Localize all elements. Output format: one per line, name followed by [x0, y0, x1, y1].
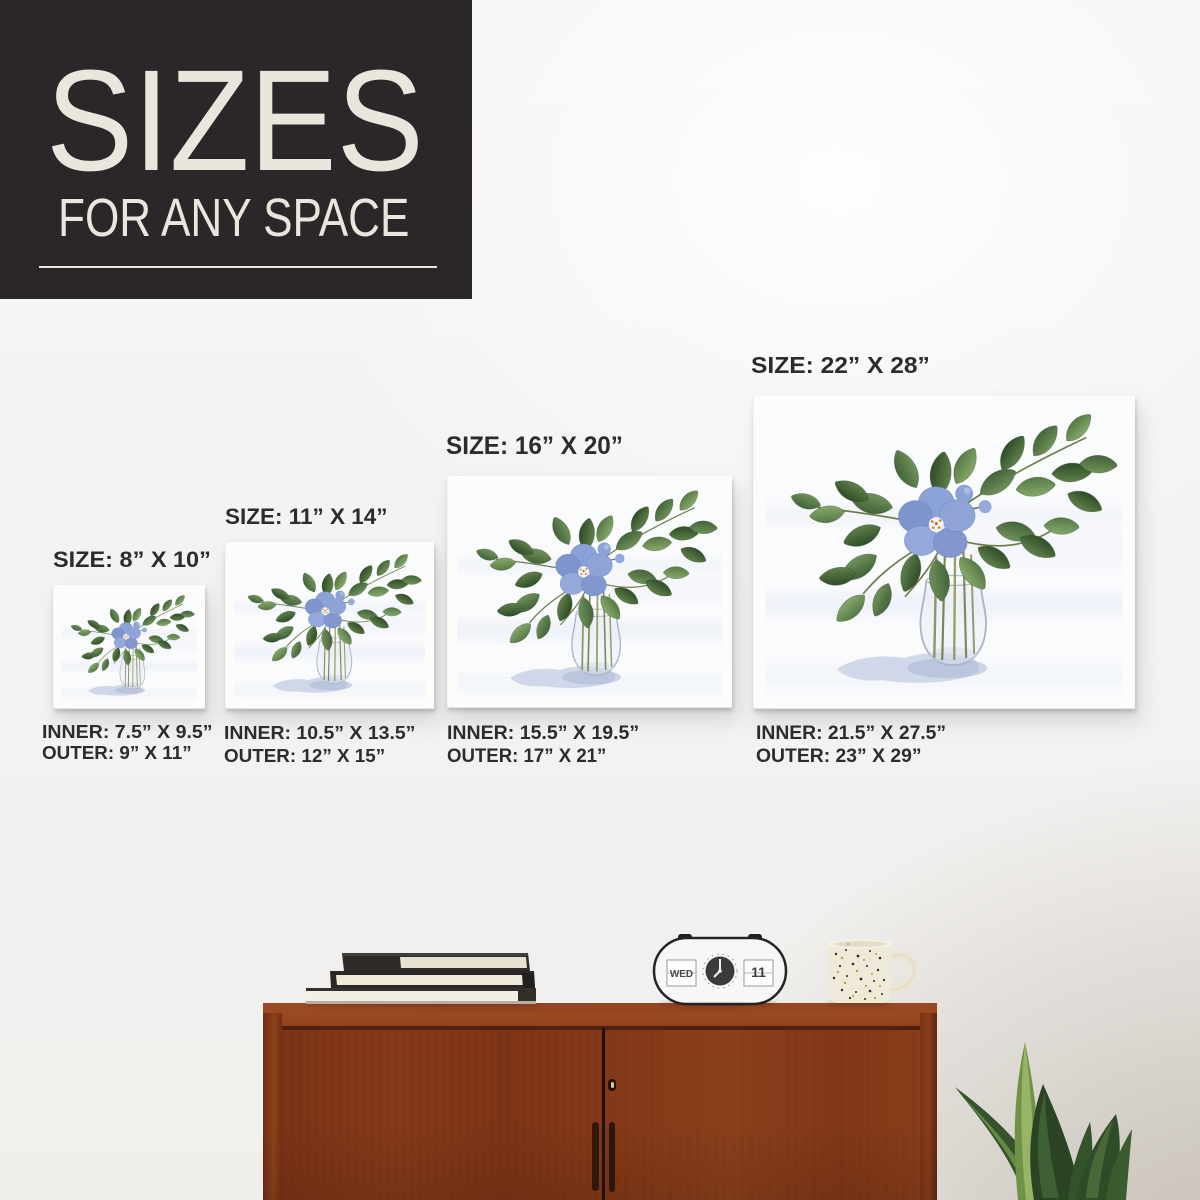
svg-text:WED: WED: [670, 969, 693, 980]
svg-text:11: 11: [751, 964, 766, 980]
